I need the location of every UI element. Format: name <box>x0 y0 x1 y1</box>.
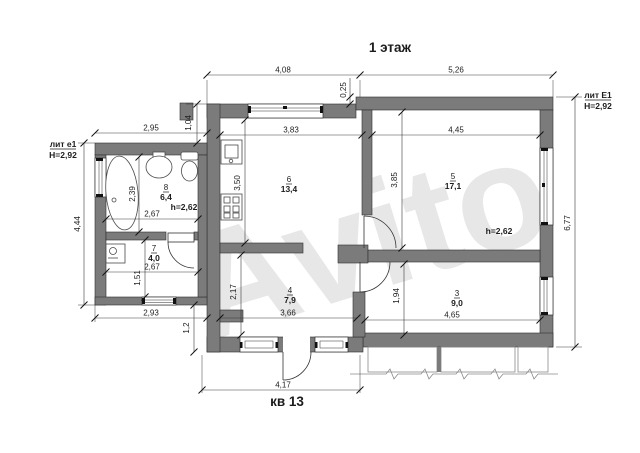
dim-room5-width: 4,45 <box>448 126 464 135</box>
liter-left-height: Н=2,92 <box>49 150 77 160</box>
liter-right-height: Н=2,92 <box>584 101 612 111</box>
liter-right: лит Е1 Н=2,92 <box>584 90 612 111</box>
dim-room3-width: 4,65 <box>444 311 460 320</box>
dim-annex-width: 2,95 <box>143 124 159 133</box>
apartment-label: кв 13 <box>270 394 304 409</box>
room-number: 7 <box>152 244 157 253</box>
dim-hall-width: 3,66 <box>280 309 296 318</box>
floor-plan: Avito <box>0 0 640 453</box>
dim-top-inset: 1,04 <box>184 115 193 131</box>
window-room7-bottom <box>142 297 176 305</box>
dim-right-height: 6,77 <box>563 215 572 231</box>
window-hall-bottom-left <box>240 337 278 352</box>
dim-bath-width: 2,67 <box>144 210 160 219</box>
dim-step-height: 1,2 <box>182 322 191 334</box>
room-area: 4,0 <box>148 253 160 263</box>
kitchen-sink-icon <box>221 140 242 164</box>
liter-right-name: лит Е1 <box>584 90 612 100</box>
liter-left-name: лит е1 <box>50 139 77 149</box>
room-area: 17,1 <box>445 181 462 191</box>
ceiling-height-bath: h=2,62 <box>171 202 198 212</box>
room-area: 9,0 <box>451 298 463 308</box>
washer-icon <box>106 244 125 263</box>
liter-left: лит е1 Н=2,92 <box>49 139 77 160</box>
room-area: 6,4 <box>160 192 172 202</box>
room-number: 8 <box>164 183 169 192</box>
floor-plan-drawing: Avito <box>0 0 640 453</box>
dim-room7-width: 2,67 <box>144 263 160 272</box>
window-room5-right <box>540 148 553 225</box>
room-number: 3 <box>455 289 460 298</box>
room-label-7: 7 4,0 <box>148 244 160 263</box>
dim-top-left: 4,08 <box>275 66 291 75</box>
room-area: 13,4 <box>281 184 298 194</box>
room-number: 4 <box>288 286 293 295</box>
dim-bath-height: 2,39 <box>128 186 137 202</box>
dim-kitchen-height: 3,50 <box>233 175 242 191</box>
break-line <box>350 369 558 379</box>
dim-annex-bottom: 2,93 <box>143 309 159 318</box>
stove-icon <box>221 194 242 220</box>
dim-kitchen-width: 3,83 <box>283 126 299 135</box>
dim-top-step: 0,25 <box>339 82 348 98</box>
room-number: 5 <box>451 172 456 181</box>
dim-room7-height: 1,51 <box>133 270 142 286</box>
dim-room5-height: 3,85 <box>390 172 399 188</box>
ceiling-height-room5: h=2,62 <box>486 226 513 236</box>
window-hall-bottom-right <box>315 337 348 352</box>
toilet-icon <box>181 152 198 181</box>
dim-hall-height: 2,17 <box>229 284 238 300</box>
page-title: 1 этаж <box>369 40 412 55</box>
dim-entry-width: 4,17 <box>275 381 291 390</box>
room-area: 7,9 <box>284 295 296 305</box>
room-label-8: 8 6,4 <box>160 183 172 202</box>
window-bath-left <box>95 158 106 197</box>
dim-left-height: 4,44 <box>73 216 82 232</box>
window-room3-right <box>540 277 553 315</box>
dim-top-right: 5,26 <box>448 66 464 75</box>
bath-sink-icon <box>146 152 172 178</box>
dim-room3-height: 1,94 <box>392 288 401 304</box>
window-kitchen-top <box>248 104 323 118</box>
porch <box>350 347 558 379</box>
room-number: 6 <box>287 175 292 184</box>
door-entry <box>283 352 311 380</box>
